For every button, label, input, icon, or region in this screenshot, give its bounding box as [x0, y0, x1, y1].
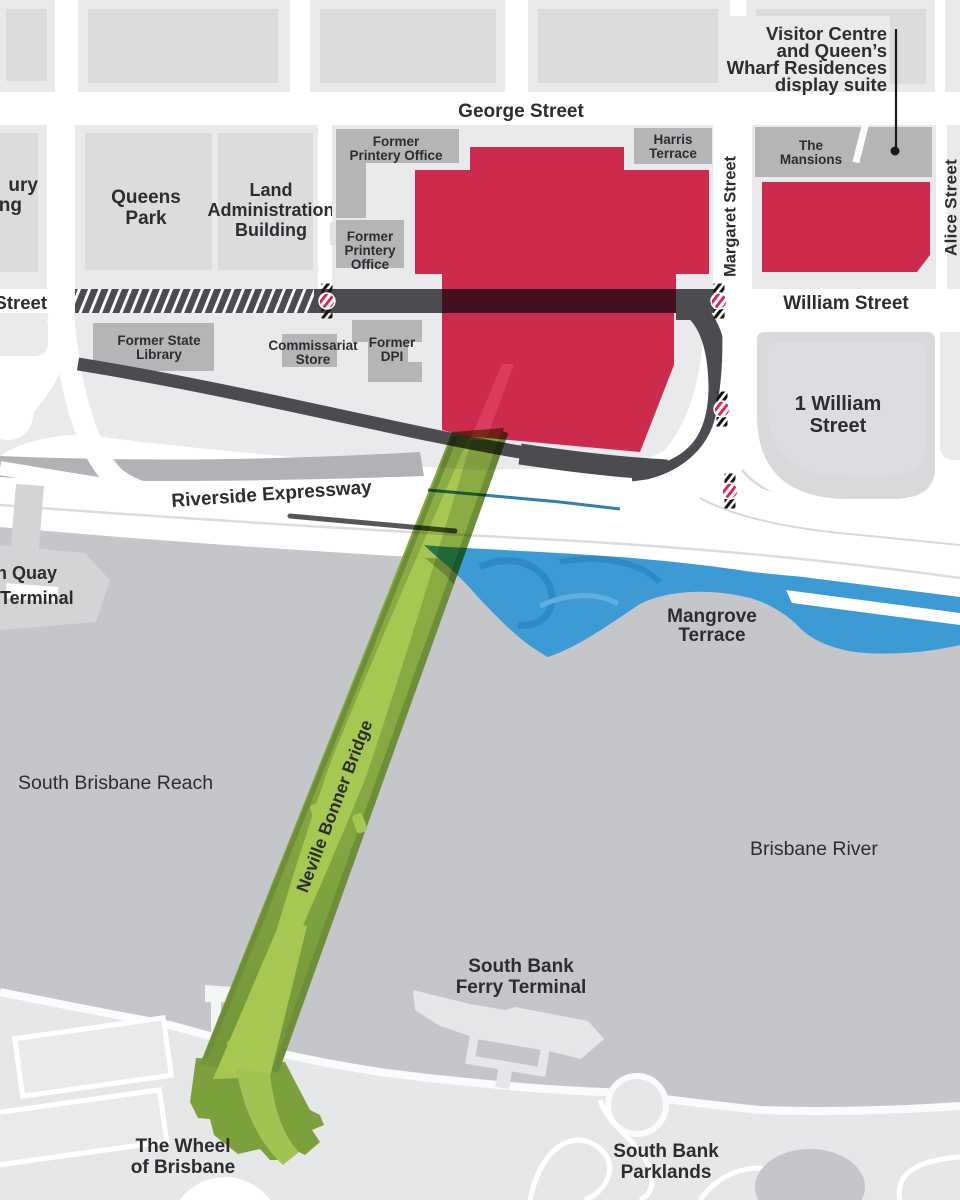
svg-text:Ferry Terminal: Ferry Terminal [456, 977, 587, 998]
svg-text:Terrace: Terrace [649, 146, 697, 161]
svg-text:Park: Park [125, 208, 167, 229]
svg-text:South Quay: South Quay [0, 563, 57, 583]
svg-text:Brisbane River: Brisbane River [750, 838, 878, 860]
svg-text:ury: ury [8, 175, 38, 196]
svg-text:Office: Office [351, 257, 390, 272]
svg-text:William Street: William Street [783, 293, 909, 314]
svg-text:South Bank: South Bank [468, 956, 574, 977]
svg-text:Street: Street [810, 415, 867, 437]
svg-text:South Brisbane Reach: South Brisbane Reach [18, 772, 213, 794]
svg-text:Administration: Administration [207, 200, 334, 220]
svg-text:Terminal: Terminal [0, 588, 74, 608]
svg-text:1 William: 1 William [795, 393, 882, 415]
svg-text:South Bank: South Bank [613, 1141, 719, 1162]
svg-text:Harris: Harris [653, 132, 692, 147]
svg-text:Former State: Former State [117, 333, 201, 348]
svg-text:The Wheel: The Wheel [135, 1136, 230, 1157]
svg-text:The: The [799, 138, 823, 153]
svg-text:Terrace: Terrace [678, 625, 745, 646]
svg-text:Building: Building [235, 220, 307, 240]
svg-text:George Street: George Street [458, 101, 584, 122]
svg-text:Mansions: Mansions [780, 152, 842, 167]
svg-text:Margaret Street: Margaret Street [721, 155, 739, 277]
svg-text:Former: Former [347, 229, 394, 244]
svg-text:Store: Store [296, 352, 331, 367]
svg-text:Parklands: Parklands [621, 1162, 712, 1183]
svg-text:Library: Library [136, 347, 182, 362]
svg-text:of Brisbane: of Brisbane [131, 1157, 236, 1178]
svg-text:Commissariat: Commissariat [268, 338, 358, 353]
svg-text:Mangrove: Mangrove [667, 606, 757, 627]
svg-text:ng: ng [0, 195, 22, 216]
svg-text:DPI: DPI [381, 349, 404, 364]
svg-text:Former: Former [369, 335, 416, 350]
svg-text:Former: Former [373, 134, 420, 149]
svg-text:Queens: Queens [111, 187, 181, 208]
svg-text:Street: Street [0, 292, 47, 313]
svg-text:Printery: Printery [344, 243, 396, 258]
svg-text:Land: Land [250, 180, 293, 200]
svg-text:Alice Street: Alice Street [941, 159, 960, 256]
svg-text:Printery Office: Printery Office [349, 148, 443, 163]
svg-text:display suite: display suite [775, 74, 887, 95]
